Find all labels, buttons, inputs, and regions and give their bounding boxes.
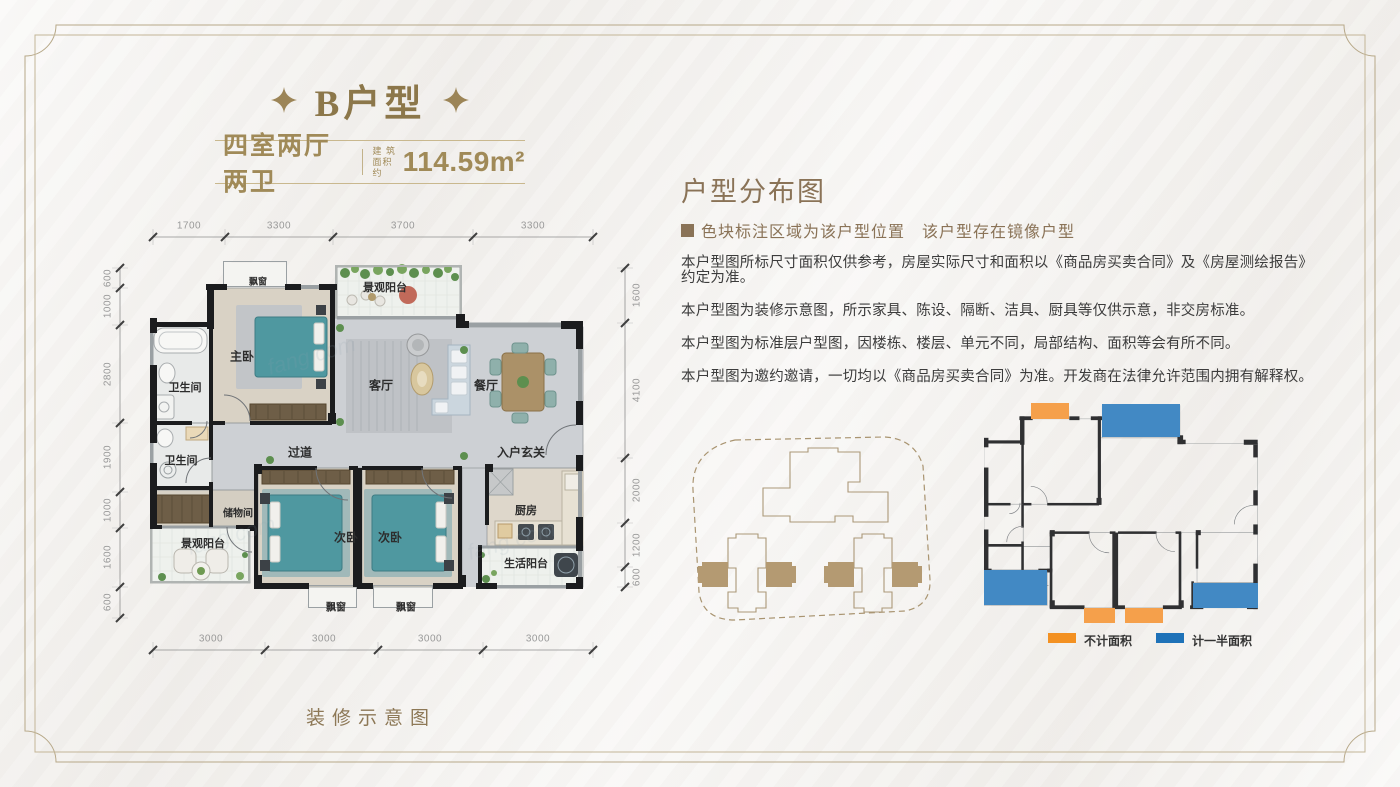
legend-label-orange: 不计面积 xyxy=(1084,632,1132,649)
room-label-bay-top: 飘窗 xyxy=(249,275,267,288)
room-label-foyer: 入户玄关 xyxy=(497,444,545,461)
dim-label: 1000 xyxy=(103,294,114,318)
disclaimer-line: 本户型图为装修示意图，所示家具、陈设、隔断、洁具、厨具等仅供示意，非交房标准。 xyxy=(681,304,1326,319)
dim-label: 3700 xyxy=(391,221,415,232)
dim-label: 600 xyxy=(103,269,114,287)
dim-label: 3000 xyxy=(418,634,442,645)
dim-label: 3000 xyxy=(199,634,223,645)
dim-label: 2000 xyxy=(632,478,643,502)
dim-label: 600 xyxy=(103,593,114,611)
toilet-lower xyxy=(157,429,173,447)
dim-label: 4100 xyxy=(632,378,643,402)
color-block-icon xyxy=(681,224,694,237)
dim-label: 1900 xyxy=(103,445,114,469)
site-tower-left xyxy=(728,534,766,612)
room-label-bath-lower: 卫生间 xyxy=(165,452,198,468)
master-wardrobe xyxy=(250,404,326,420)
badge-divider xyxy=(362,149,363,175)
unit-type-label: 四室两厅两卫 xyxy=(223,126,354,198)
disclaimer-line: 本户型图为标准层户型图，因楼栋、楼层、单元不同，局部结构、面积等会有所不同。 xyxy=(681,337,1326,352)
legend-swatch-orange xyxy=(1048,633,1076,643)
room-label-storage: 储物间 xyxy=(223,505,253,520)
area-value: 114.59m² xyxy=(403,146,525,178)
room-label-utility: 生活阳台 xyxy=(504,555,548,571)
sparkle-right-icon xyxy=(443,87,469,113)
legend-label-blue: 计一半面积 xyxy=(1192,632,1252,649)
dim-label: 1200 xyxy=(632,533,643,557)
title-block: B户型 xyxy=(250,76,490,124)
area-label-line2: 面积约 xyxy=(372,157,396,179)
unit-badge: 四室两厅两卫 建 筑 面积约 114.59m² xyxy=(215,140,525,184)
site-building-top xyxy=(763,448,888,522)
room-label-bay-bottom-left: 飘窗 xyxy=(326,599,346,614)
plan-caption: 装修示意图 xyxy=(306,703,436,730)
mini-highlight-blue xyxy=(984,404,1258,608)
page-title: B户型 xyxy=(315,73,426,127)
dim-label: 1700 xyxy=(177,221,201,232)
living-rug xyxy=(346,339,452,433)
dim-label: 1600 xyxy=(632,283,643,307)
room-label-balcony-lower: 景观阳台 xyxy=(181,535,225,551)
dim-label: 3000 xyxy=(312,634,336,645)
distribution-note: 色块标注区域为该户型位置 该户型存在镜像户型 xyxy=(681,218,1075,242)
dim-label: 3300 xyxy=(521,221,545,232)
distribution-note-text: 色块标注区域为该户型位置 该户型存在镜像户型 xyxy=(701,218,1075,242)
mini-floor-plan xyxy=(984,398,1269,643)
room-label-bath-upper: 卫生间 xyxy=(169,379,202,395)
site-plan xyxy=(672,418,967,648)
room-label-bay-bottom-right: 飘窗 xyxy=(396,599,416,614)
room-label-corridor: 过道 xyxy=(288,444,312,461)
room-label-bed-right: 次卧 xyxy=(378,529,402,546)
disclaimer-line: 本户型图所标尺寸面积仅供参考，房屋实际尺寸和面积以《商品房买卖合同》及《房屋测绘… xyxy=(681,256,1326,285)
distribution-heading: 户型分布图 xyxy=(681,170,826,209)
room-label-bed-left: 次卧 xyxy=(334,529,358,546)
dim-label: 3300 xyxy=(267,221,291,232)
room-label-living: 客厅 xyxy=(369,377,393,394)
disclaimer-line: 本户型图为邀约邀请，一切均以《商品房买卖合同》为准。开发商在法律允许范围内拥有解… xyxy=(681,370,1326,385)
disclaimers: 本户型图所标尺寸面积仅供参考，房屋实际尺寸和面积以《商品房买卖合同》及《房屋测绘… xyxy=(681,256,1326,403)
room-label-dining: 餐厅 xyxy=(474,377,498,394)
legend-swatch-blue xyxy=(1156,633,1184,643)
sparkle-left-icon xyxy=(271,87,297,113)
dim-label: 1600 xyxy=(103,545,114,569)
site-unit-blocks xyxy=(698,562,922,587)
room-label-master: 主卧 xyxy=(230,348,254,365)
area-label-line1: 建 筑 xyxy=(372,146,396,157)
site-tower-right xyxy=(854,534,892,612)
dim-label: 2800 xyxy=(103,362,114,386)
area-label: 建 筑 面积约 xyxy=(372,146,396,179)
room-label-kitchen: 厨房 xyxy=(515,502,537,518)
dim-label: 1000 xyxy=(103,498,114,522)
page: { "header": { "title": "B户型", "unit_type… xyxy=(0,0,1400,787)
room-label-balcony-top: 景观阳台 xyxy=(363,279,407,295)
dim-label: 3000 xyxy=(526,634,550,645)
dim-label: 600 xyxy=(632,568,643,586)
